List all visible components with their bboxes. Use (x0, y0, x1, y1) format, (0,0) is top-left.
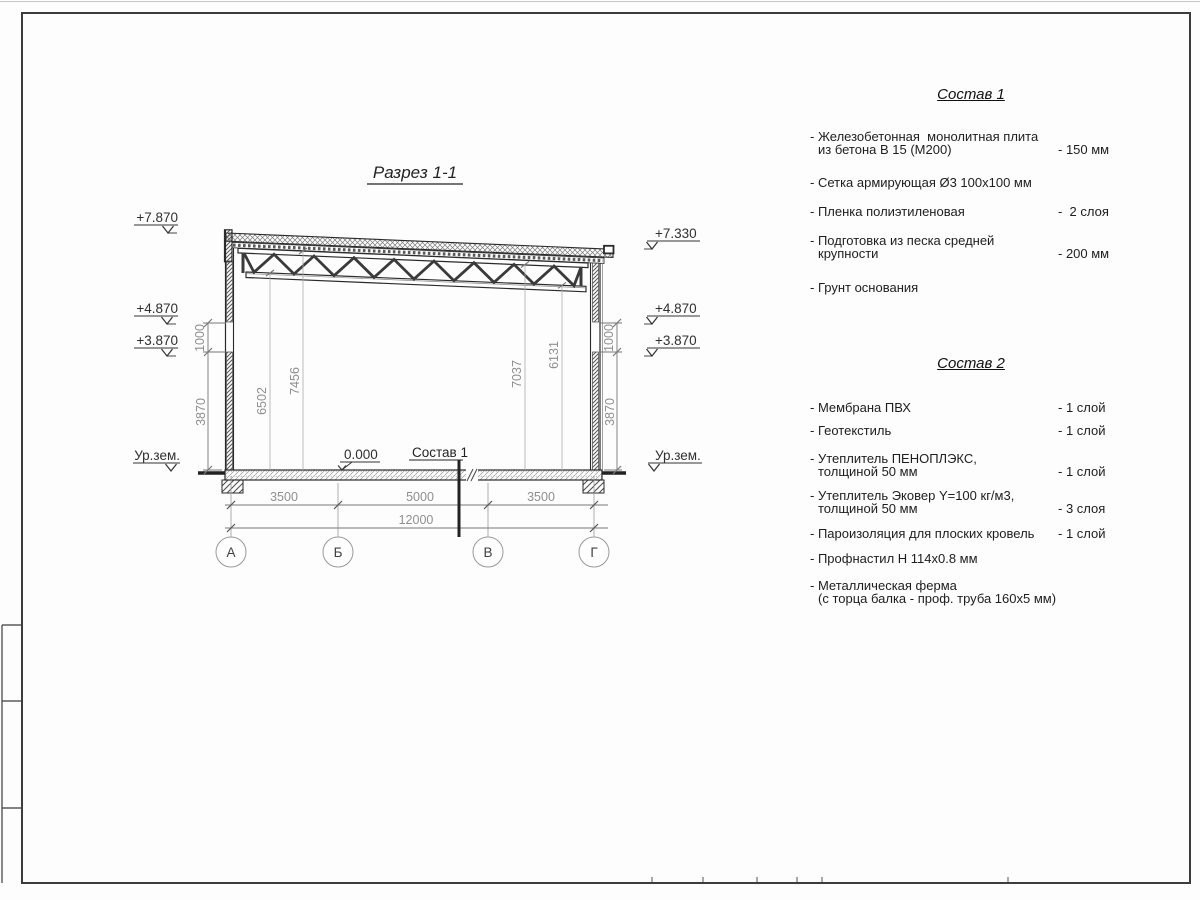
wall-axis-a (225, 230, 234, 470)
axis-bubbles: А Б В Г (216, 537, 609, 567)
floor-ref-text: Состав 1 (412, 445, 468, 460)
dim-3500-left: 3500 (270, 490, 298, 504)
list-item: - Металлическая ферма (с торца балка - п… (810, 579, 1132, 605)
elevation-left-roof: +7.870 (136, 210, 178, 225)
elevation-left-387: +3.870 (136, 333, 178, 348)
foundation-block-left (222, 480, 243, 493)
composition-1-list: - Железобетонная монолитная плита из бет… (810, 130, 1132, 294)
dim-6502: 6502 (255, 387, 269, 415)
list-item: - Профнастил Н 114х0.8 мм (810, 552, 1132, 565)
dim-1000-right: 1000 (602, 324, 616, 352)
left-stamp-boxes (2, 625, 22, 883)
title-block-ticks (652, 877, 1008, 882)
item-value: - 150 мм (1058, 143, 1109, 156)
wall-axis-g (591, 263, 603, 470)
composition-1-heading: Состав 1 (810, 87, 1132, 103)
composition-2-list: - Мембрана ПВХ - 1 слой - Геотекстиль - … (810, 401, 1132, 605)
list-item: - Железобетонная монолитная плита из бет… (810, 130, 1132, 156)
composition-2-panel: Состав 2 - Мембрана ПВХ - 1 слой - Геоте… (810, 356, 1132, 605)
dim-12000: 12000 (399, 513, 434, 527)
dim-6131: 6131 (547, 341, 561, 369)
dim-3870-left: 3870 (194, 398, 208, 426)
item-line1: - Сетка армирующая Ø3 100х100 мм (810, 176, 1132, 189)
elevation-right-roof: +7.330 (655, 226, 697, 241)
dim-7456: 7456 (288, 367, 302, 395)
list-item: - Геотекстиль - 1 слой (810, 424, 1132, 437)
dim-3870-right: 3870 (603, 398, 617, 426)
drawing-title: Разрез 1-1 (367, 163, 463, 184)
dim-3500-right: 3500 (527, 490, 555, 504)
item-value: - 1 слой (1058, 465, 1106, 478)
list-item: - Грунт основания (810, 281, 1132, 294)
item-line1: - Грунт основания (810, 281, 1132, 294)
item-value: - 1 слой (1058, 424, 1106, 437)
list-item: - Сетка армирующая Ø3 100х100 мм (810, 176, 1132, 189)
bottom-dims: 3500 5000 3500 12000 (225, 476, 608, 537)
dim-7037: 7037 (510, 360, 524, 388)
list-item: - Пленка полиэтиленовая - 2 слоя (810, 205, 1132, 218)
drawing-sheet: Разрез 1-1 (0, 0, 1200, 900)
elevation-right-387: +3.870 (655, 333, 697, 348)
roof-edge-cap (604, 246, 614, 254)
composition-2-heading: Состав 2 (810, 356, 1132, 372)
section-title-text: Разрез 1-1 (373, 163, 457, 182)
zero-level-text: 0.000 (344, 447, 378, 462)
item-line1: - Профнастил Н 114х0.8 мм (810, 552, 1132, 565)
dim-1000-left: 1000 (193, 324, 207, 352)
elevation-marks-left: +7.870 +4.870 +3.870 Ур.зем. (133, 210, 180, 471)
elevation-left-487: +4.870 (136, 301, 178, 316)
list-item: - Утеплитель ПЕНОПЛЭКС, толщиной 50 мм -… (810, 452, 1132, 478)
axis-v: В (483, 545, 492, 560)
foundation-block-right (583, 480, 604, 493)
list-item: - Утеплитель Эковер Y=100 кг/м3, толщино… (810, 489, 1132, 515)
list-item: - Мембрана ПВХ - 1 слой (810, 401, 1132, 414)
elevation-marks-right: +7.330 +4.870 +3.870 Ур.зем. (644, 226, 702, 471)
item-line2: (с торца балка - проф. труба 160х5 мм) (810, 592, 1132, 605)
axis-a: А (226, 545, 235, 560)
dim-5000: 5000 (406, 490, 434, 504)
list-item: - Пароизоляция для плоских кровель - 1 с… (810, 527, 1132, 540)
item-value: - 2 слоя (1058, 205, 1109, 218)
axis-g: Г (590, 545, 598, 560)
item-value: - 3 слоя (1058, 502, 1105, 515)
item-value: - 200 мм (1058, 247, 1109, 260)
item-value: - 1 слой (1058, 401, 1106, 414)
elevation-right-487: +4.870 (655, 301, 697, 316)
list-item: - Подготовка из песка средней крупности … (810, 234, 1132, 260)
axis-b: Б (334, 545, 343, 560)
ground-level-left: Ур.зем. (134, 448, 180, 463)
item-value: - 1 слой (1058, 527, 1106, 540)
zero-level-mark: 0.000 (338, 447, 380, 470)
composition-1-panel: Состав 1 - Железобетонная монолитная пли… (810, 87, 1132, 294)
ground-level-right: Ур.зем. (655, 448, 701, 463)
